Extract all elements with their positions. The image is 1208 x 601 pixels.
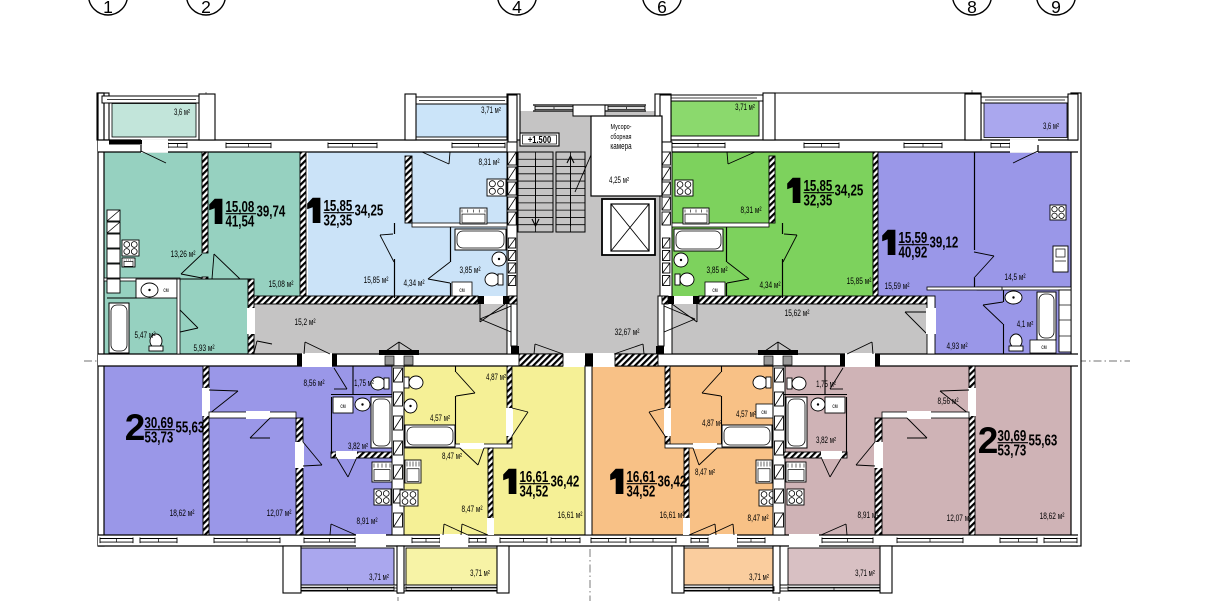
svg-text:3,71 м²: 3,71 м² [470, 568, 490, 578]
svg-text:41,54: 41,54 [226, 214, 255, 231]
svg-text:см: см [761, 409, 767, 416]
svg-text:4,57 м²: 4,57 м² [430, 413, 450, 423]
svg-text:55,63: 55,63 [1029, 433, 1058, 450]
svg-text:8,56 м²: 8,56 м² [304, 377, 325, 388]
svg-text:6: 6 [657, 0, 667, 17]
svg-text:34,52: 34,52 [520, 484, 549, 501]
svg-text:3,82 м²: 3,82 м² [348, 441, 368, 451]
svg-text:12,07 м²: 12,07 м² [267, 507, 292, 518]
svg-text:3,82 м²: 3,82 м² [816, 435, 836, 445]
svg-text:3,71 м²: 3,71 м² [369, 572, 389, 582]
svg-text:4,87 м²: 4,87 м² [486, 372, 506, 382]
svg-text:8,47 м²: 8,47 м² [695, 467, 715, 477]
svg-text:4: 4 [512, 0, 522, 17]
svg-text:13,26 м²: 13,26 м² [171, 248, 196, 259]
svg-text:15,59 м²: 15,59 м² [885, 280, 910, 291]
svg-text:15,62 м²: 15,62 м² [785, 307, 810, 318]
svg-text:см: см [459, 287, 465, 294]
svg-text:8,47 м²: 8,47 м² [462, 503, 483, 514]
svg-text:4,25 м²: 4,25 м² [609, 175, 629, 185]
svg-text:34,25: 34,25 [835, 183, 864, 200]
svg-text:36,42: 36,42 [551, 474, 580, 491]
svg-text:3,71 м²: 3,71 м² [481, 105, 501, 115]
svg-text:3,71 м²: 3,71 м² [855, 568, 875, 578]
svg-text:Мусоро-: Мусоро- [611, 122, 632, 131]
svg-text:8,31 м²: 8,31 м² [479, 156, 500, 167]
svg-text:см: см [832, 403, 838, 410]
svg-text:2: 2 [978, 420, 999, 461]
svg-text:16,61 м²: 16,61 м² [558, 509, 583, 520]
svg-text:камера: камера [610, 141, 631, 151]
svg-text:4,1 м²: 4,1 м² [1017, 319, 1034, 329]
svg-text:14,5 м²: 14,5 м² [1005, 271, 1026, 282]
svg-text:3,85 м²: 3,85 м² [707, 264, 728, 275]
svg-text:см: см [1041, 344, 1047, 351]
svg-text:8,91 м²: 8,91 м² [858, 509, 879, 520]
svg-text:15,85 м²: 15,85 м² [364, 274, 389, 285]
svg-text:4,87 м²: 4,87 м² [702, 418, 722, 428]
svg-text:8: 8 [967, 0, 977, 17]
svg-text:1,75 м²: 1,75 м² [354, 378, 374, 388]
svg-text:34,25: 34,25 [355, 203, 384, 220]
svg-text:8,56 м²: 8,56 м² [938, 395, 959, 406]
svg-text:15,08 м²: 15,08 м² [269, 278, 294, 289]
svg-text:3,6 м²: 3,6 м² [174, 107, 190, 117]
svg-text:5,93 м²: 5,93 м² [194, 342, 215, 353]
svg-text:16,61 м²: 16,61 м² [660, 509, 685, 520]
svg-text:32,35: 32,35 [804, 193, 833, 210]
svg-text:1,75 м²: 1,75 м² [816, 379, 836, 389]
svg-text:см: см [340, 403, 346, 410]
svg-text:36,42: 36,42 [658, 474, 687, 491]
svg-text:см: см [712, 287, 718, 294]
svg-text:4,57 м²: 4,57 м² [736, 409, 756, 419]
svg-text:4,34 м²: 4,34 м² [760, 279, 781, 290]
svg-text:39,12: 39,12 [930, 235, 959, 252]
svg-text:32,35: 32,35 [324, 213, 353, 230]
svg-text:2: 2 [125, 407, 146, 448]
svg-text:55,63: 55,63 [176, 420, 205, 437]
svg-text:39,74: 39,74 [257, 204, 286, 221]
svg-text:53,73: 53,73 [145, 430, 174, 447]
svg-text:18,62 м²: 18,62 м² [1040, 510, 1065, 521]
svg-text:8,47 м²: 8,47 м² [748, 512, 769, 523]
svg-text:2: 2 [201, 0, 211, 17]
svg-text:8,31 м²: 8,31 м² [741, 204, 762, 215]
svg-text:53,73: 53,73 [998, 443, 1027, 460]
svg-text:1: 1 [103, 0, 113, 17]
svg-text:8,47 м²: 8,47 м² [442, 451, 462, 461]
svg-text:5,47 м²: 5,47 м² [135, 329, 156, 340]
svg-text:3,71 м²: 3,71 м² [735, 102, 755, 112]
svg-text:сборная: сборная [611, 132, 632, 141]
svg-text:см: см [163, 287, 169, 294]
svg-text:40,92: 40,92 [899, 245, 928, 262]
svg-text:4,34 м²: 4,34 м² [404, 277, 425, 288]
svg-text:32,67 м²: 32,67 м² [615, 326, 640, 337]
svg-text:3,6 м²: 3,6 м² [1043, 121, 1059, 131]
svg-text:15,2 м²: 15,2 м² [295, 316, 316, 327]
svg-text:34,52: 34,52 [627, 484, 656, 501]
svg-text:4,93 м²: 4,93 м² [947, 340, 968, 351]
svg-text:12,07 м²: 12,07 м² [947, 512, 972, 523]
svg-text:+1.500: +1.500 [528, 134, 551, 146]
svg-text:8,91 м²: 8,91 м² [357, 515, 378, 526]
svg-text:3,71 м²: 3,71 м² [749, 572, 769, 582]
svg-text:18,62 м²: 18,62 м² [170, 507, 195, 518]
svg-text:3,85 м²: 3,85 м² [460, 264, 481, 275]
svg-text:9: 9 [1051, 0, 1061, 17]
svg-text:15,85 м²: 15,85 м² [847, 275, 872, 286]
